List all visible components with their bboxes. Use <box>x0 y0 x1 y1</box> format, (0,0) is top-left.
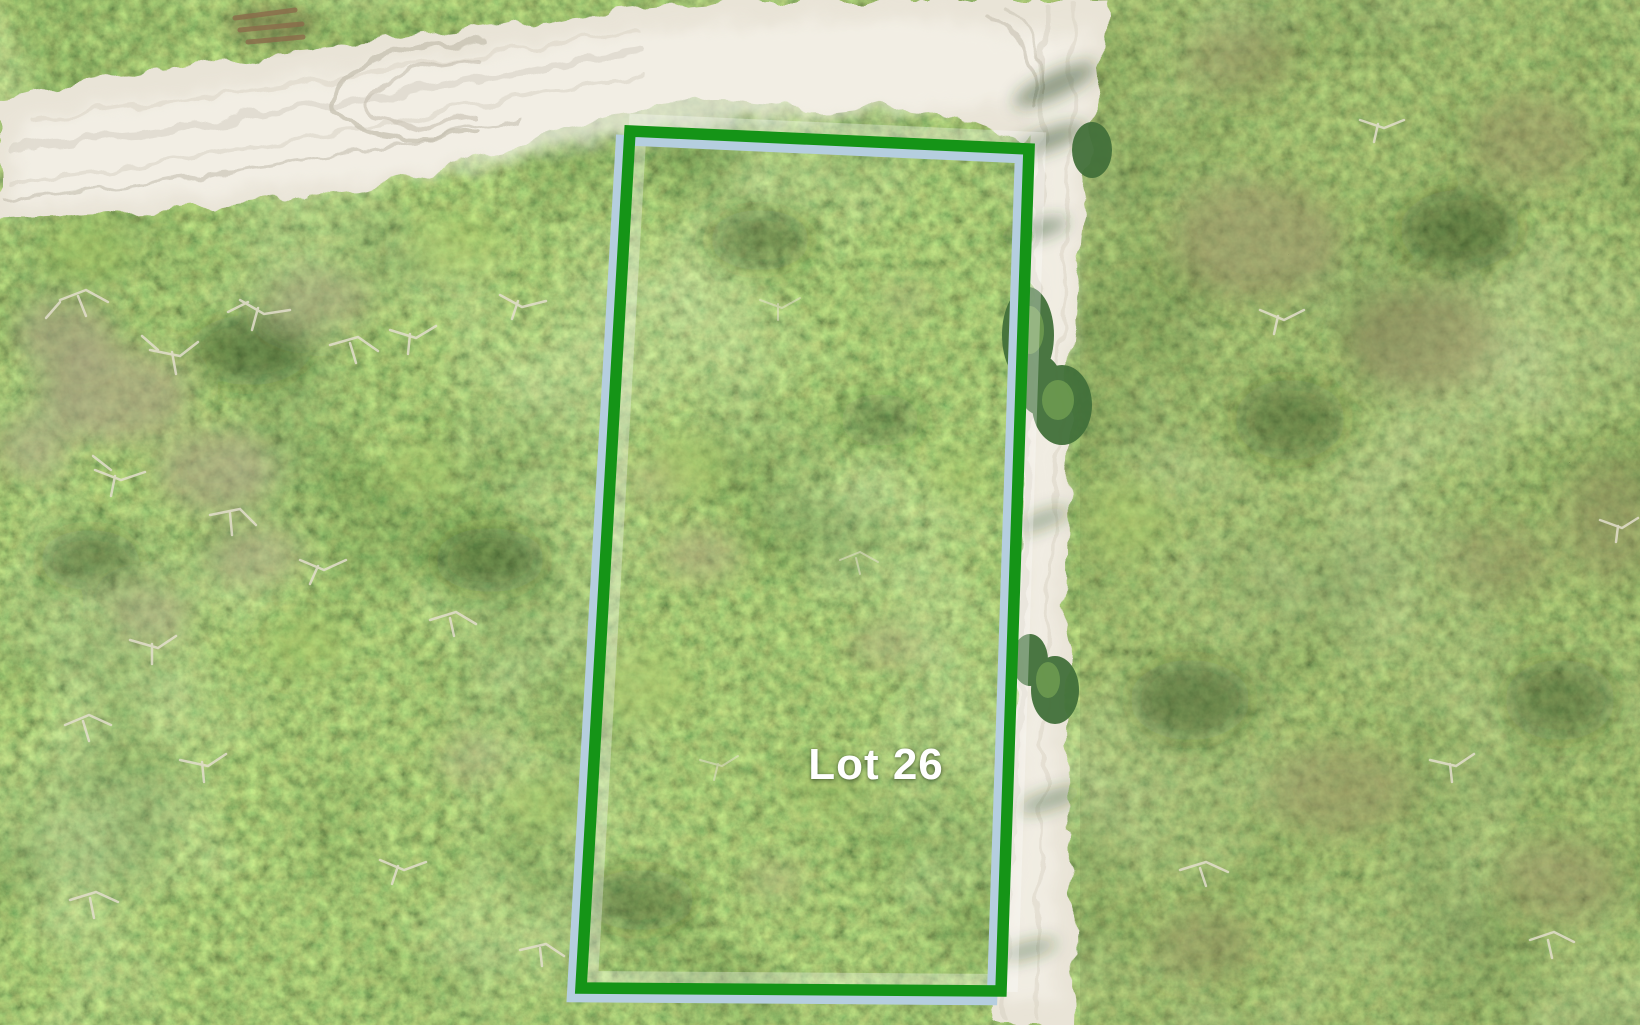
aerial-photo: Lot 26 <box>0 0 1640 1025</box>
forest-scene <box>0 0 1640 1025</box>
timber-pile <box>225 7 315 43</box>
lot-label: Lot 26 <box>806 740 946 790</box>
